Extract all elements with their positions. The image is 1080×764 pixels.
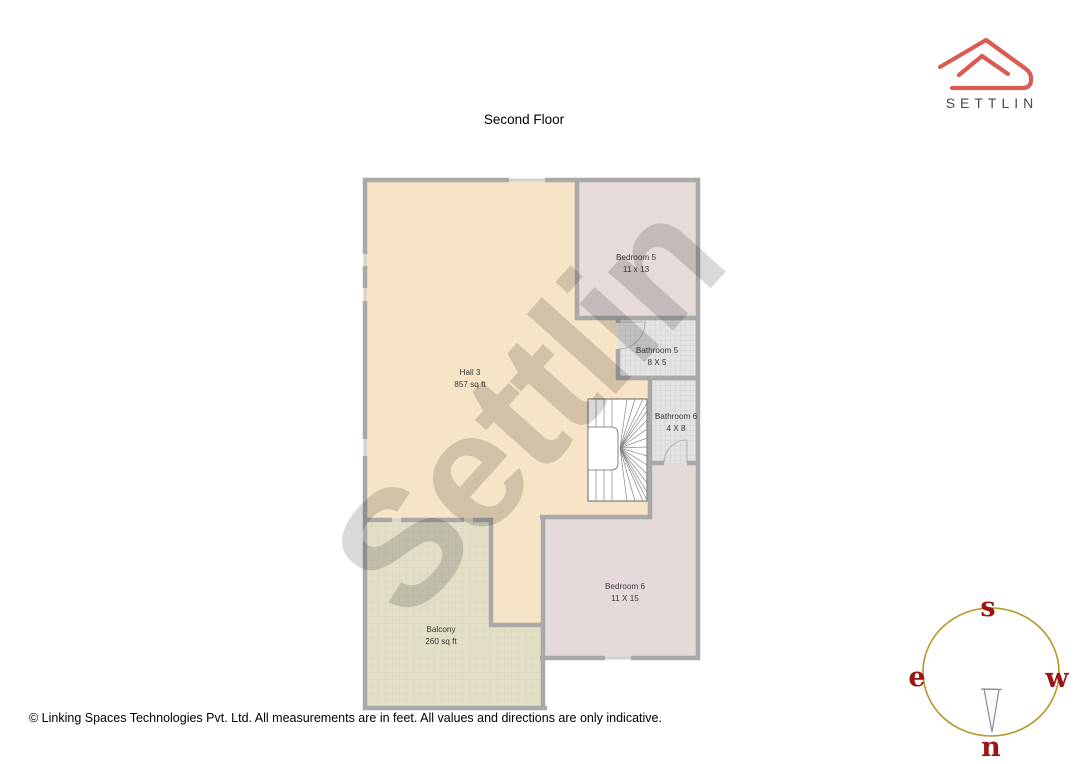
room-label-balcony-size: 260 sq ft	[425, 637, 457, 646]
room-label-bathroom5-name: Bathroom 5	[636, 346, 679, 355]
staircase	[588, 399, 647, 501]
page-title: Second Floor	[0, 112, 1048, 127]
roof-outline-icon	[940, 40, 1031, 88]
compass-label-west: w	[1044, 663, 1069, 694]
footer-note: © Linking Spaces Technologies Pvt. Ltd. …	[29, 711, 662, 725]
room-label-bathroom6-name: Bathroom 6	[655, 412, 698, 421]
room-label-hall-size: 857 sq ft	[454, 380, 486, 389]
room-label-hall-name: Hall 3	[460, 368, 481, 377]
room-bedroom-5	[577, 180, 698, 318]
staircase-notch	[588, 427, 618, 470]
compass-label-north: n	[981, 732, 1001, 761]
compass-label-east: e	[908, 662, 925, 693]
room-label-bedroom5-name: Bedroom 5	[616, 253, 656, 262]
room-label-bathroom6-size: 4 X 8	[666, 424, 686, 433]
brand-name: SETTLIN	[940, 95, 1044, 111]
room-label-bedroom5-size: 11 x 13	[623, 265, 650, 274]
floor-plan-page: Hall 3 857 sq ft Bedroom 5 11 x 13 Bathr…	[0, 0, 1080, 764]
room-label-bathroom5-size: 8 X 5	[647, 358, 667, 367]
compass-label-south: s	[980, 592, 995, 623]
room-label-bedroom6-size: 11 X 15	[611, 594, 639, 603]
compass-needle	[981, 689, 1002, 732]
room-label-balcony-name: Balcony	[426, 625, 456, 634]
room-label-bedroom6-name: Bedroom 6	[605, 582, 645, 591]
compass: s e w n	[900, 585, 1076, 761]
